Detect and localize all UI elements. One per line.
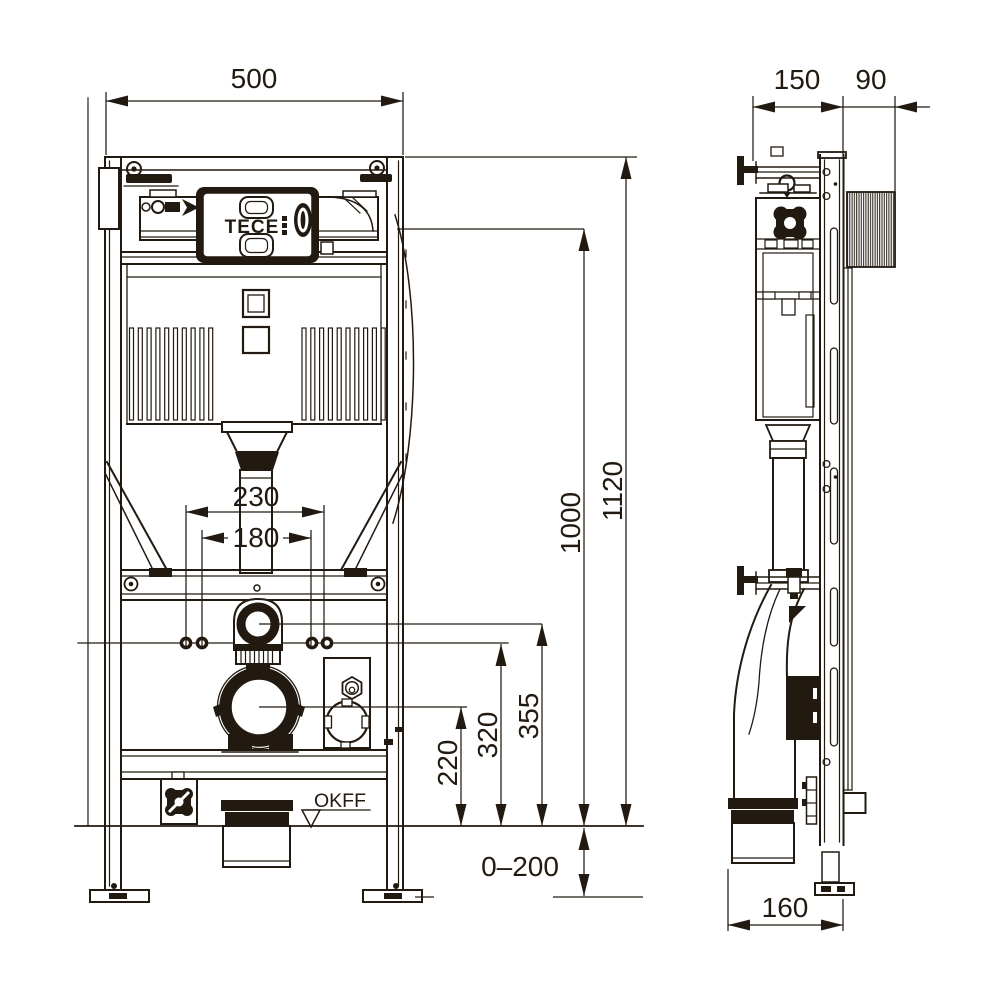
svg-text:355: 355 xyxy=(513,693,544,740)
svg-text:0–200: 0–200 xyxy=(481,851,559,882)
front-cistern-lower xyxy=(127,264,385,432)
rib-group-left xyxy=(130,328,213,420)
level-triangle-icon xyxy=(302,810,320,827)
svg-text:320: 320 xyxy=(472,712,503,759)
svg-text:160: 160 xyxy=(762,892,809,923)
mounting-box xyxy=(324,658,403,748)
side-flush-tube xyxy=(737,425,820,599)
floor-level-marker: OKFF xyxy=(302,790,370,827)
brand-logo: TECE xyxy=(225,217,280,238)
drawing-canvas: TECE xyxy=(0,0,1000,1000)
svg-text:1000: 1000 xyxy=(555,492,586,554)
wall-hatch-block xyxy=(847,192,895,267)
wall-bracket-left xyxy=(99,168,119,229)
svg-text:90: 90 xyxy=(855,64,886,95)
inspection-square xyxy=(243,290,269,317)
front-drain-socket xyxy=(213,666,305,753)
dim-depth-top-rail: 90 xyxy=(855,64,917,113)
svg-text:230: 230 xyxy=(233,481,280,512)
dim-panel-height: 1000 xyxy=(555,229,590,826)
flush-bend-unit xyxy=(181,599,331,672)
fill-valve-icon xyxy=(774,207,807,240)
svg-text:220: 220 xyxy=(432,740,463,787)
floor-level-label: OKFF xyxy=(314,790,366,812)
svg-text:1120: 1120 xyxy=(597,461,628,521)
dim-flush-bend-height: 355 xyxy=(513,624,548,826)
flush-plate-housing: TECE xyxy=(196,187,319,263)
supply-valve-icon xyxy=(161,772,197,824)
wall-anchor-bracket xyxy=(844,793,866,813)
svg-text:150: 150 xyxy=(774,64,821,95)
actuator-oval-icon xyxy=(294,203,312,237)
side-foot-plate xyxy=(815,883,854,895)
installation-frame-technical-drawing: TECE xyxy=(0,0,1000,1000)
dim-front-width: 500 xyxy=(106,63,403,155)
side-view xyxy=(728,147,895,895)
svg-text:500: 500 xyxy=(231,63,278,94)
foot-plates xyxy=(90,883,422,902)
dim-fixing-height: 320 xyxy=(472,644,507,826)
dim-total-height: 1120 xyxy=(597,157,632,826)
side-cistern xyxy=(756,184,819,420)
dim-foot-adjustment: 0–200 xyxy=(481,828,589,896)
side-drain-bend xyxy=(728,585,819,863)
rib-group-right xyxy=(302,328,385,420)
dim-outlet-height: 220 xyxy=(432,707,467,826)
svg-text:180: 180 xyxy=(233,522,280,553)
